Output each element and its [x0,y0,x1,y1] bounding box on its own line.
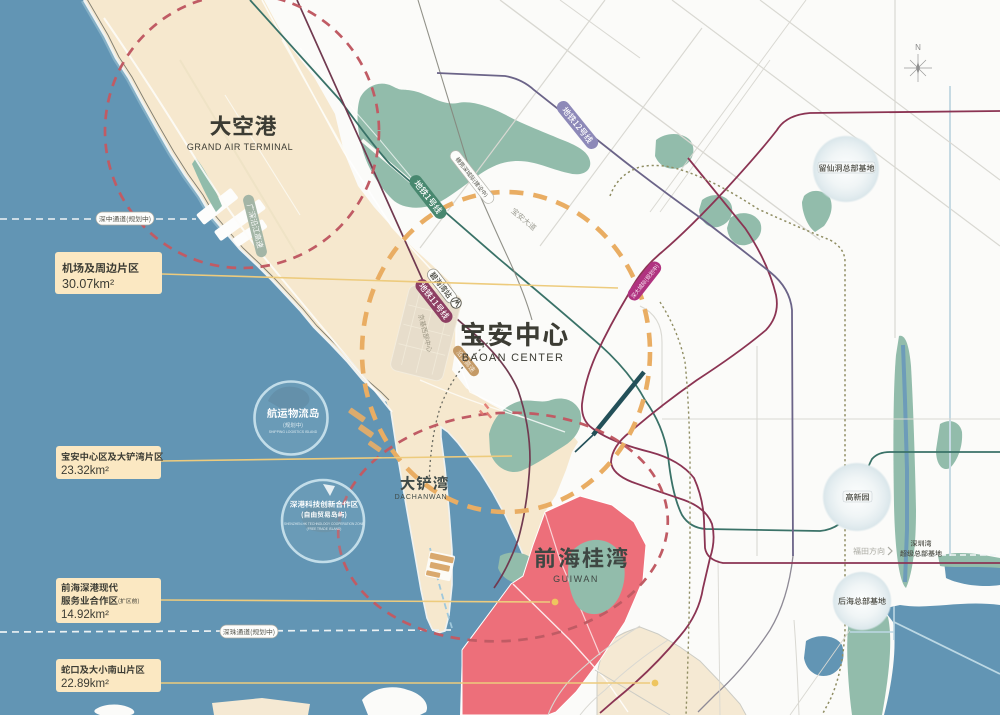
svg-text:23.32km²: 23.32km² [61,465,109,477]
svg-text:N: N [915,43,921,52]
svg-text:SHIPPING LOGISTICS ISLAND: SHIPPING LOGISTICS ISLAND [269,430,318,434]
svg-text:14.92km²: 14.92km² [61,609,109,621]
svg-text:30.07km²: 30.07km² [62,277,114,291]
svg-text:22.89km²: 22.89km² [61,678,109,690]
svg-text:SHENZHEN-HK TECHNOLOGY COOPERA: SHENZHEN-HK TECHNOLOGY COOPERATION ZONE [284,522,364,526]
svg-text:GUIWAN: GUIWAN [553,574,599,584]
svg-text:GRAND AIR TERMINAL: GRAND AIR TERMINAL [187,142,293,152]
svg-text:(FREE TRADE ISLAND): (FREE TRADE ISLAND) [307,527,342,531]
svg-text:DACHANWAN: DACHANWAN [395,494,448,501]
svg-text:BAOAN CENTER: BAOAN CENTER [462,352,564,364]
